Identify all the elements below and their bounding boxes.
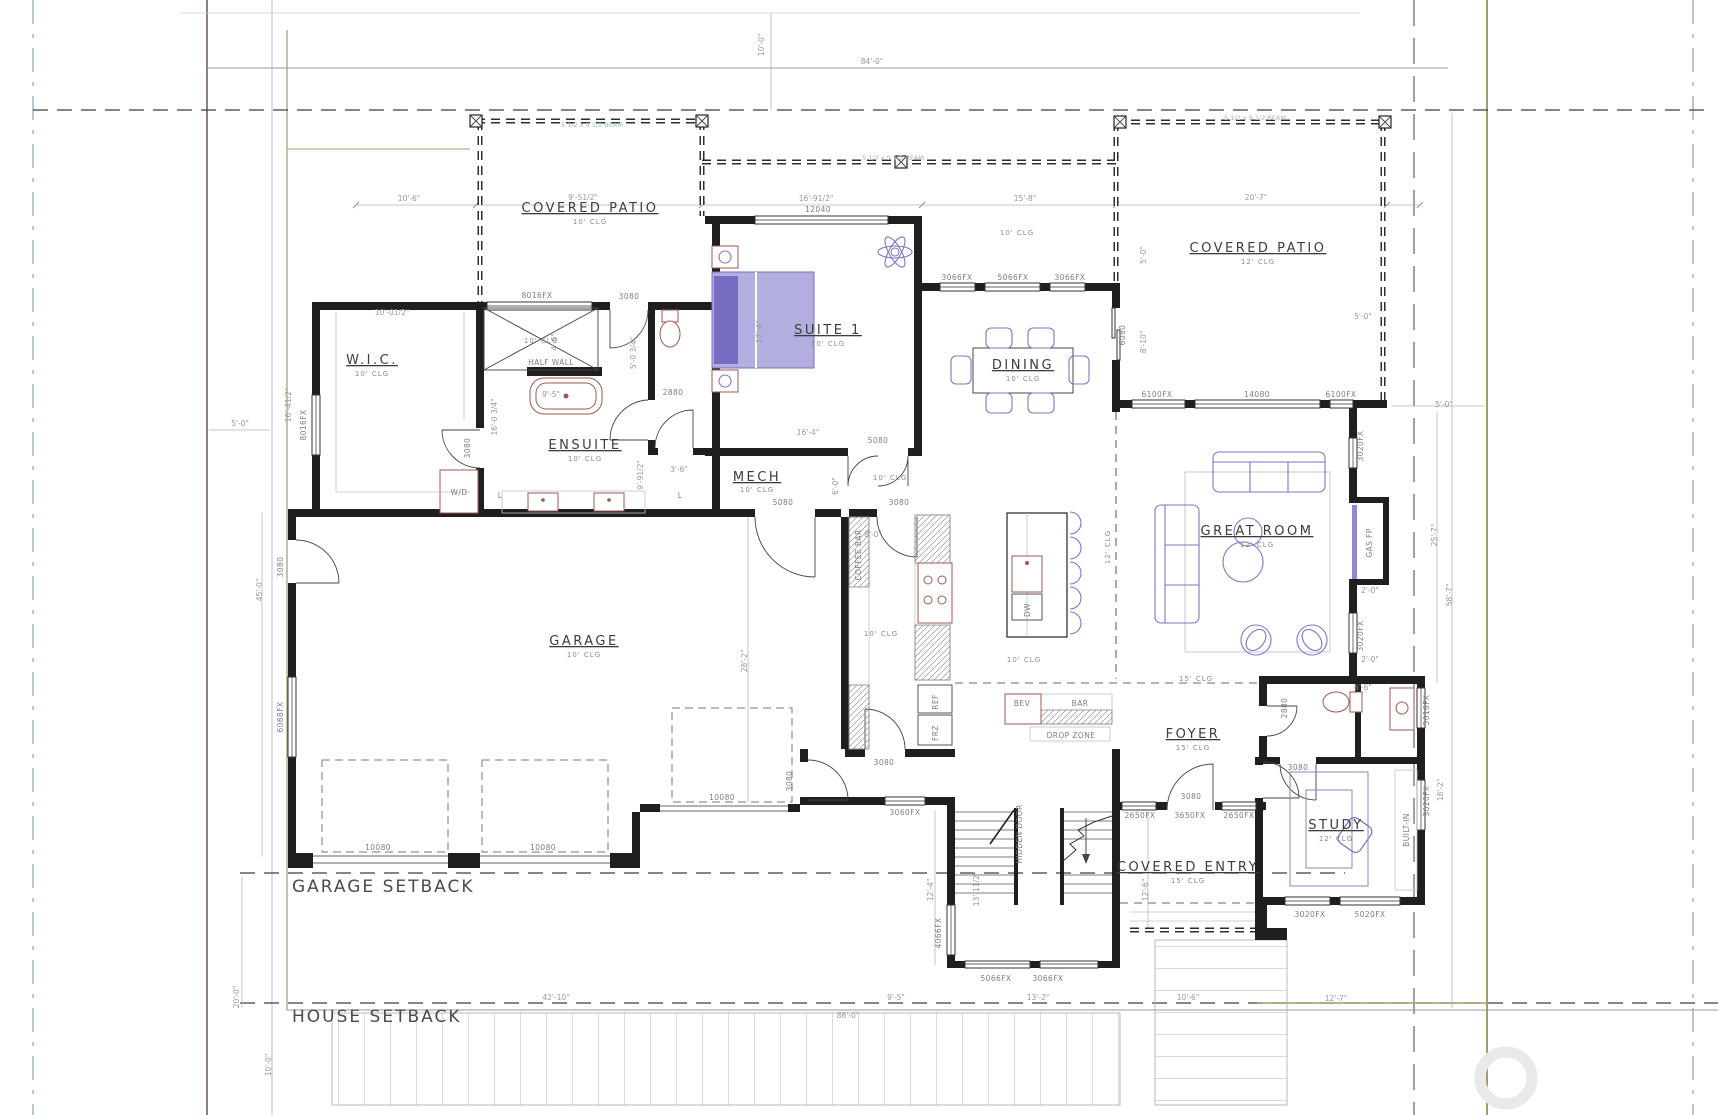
dim-label: 10'-0": [264, 1054, 273, 1077]
dim-label: 15'-8": [1014, 194, 1037, 203]
garage-door-label: 10080: [365, 843, 391, 852]
clg-label: 12' CLG: [1240, 541, 1274, 549]
hidden-door-label: HIDDEN DOOR: [1015, 804, 1024, 863]
beam-label: 5 1/2 x 9 1/2 BEAM: [1224, 114, 1286, 122]
room-label: GREAT ROOM: [1201, 524, 1314, 539]
dim-label: 12'-4": [926, 879, 935, 902]
clg-label: 10' CLG: [355, 370, 389, 378]
window-label: 3066FX: [942, 273, 973, 282]
range: [918, 563, 952, 623]
clg-label: 10' CLG: [1006, 375, 1040, 383]
clg-label: 10' CLG: [573, 218, 607, 226]
window-label: 5066FX: [981, 974, 1012, 983]
toilet: [660, 310, 680, 347]
door-label: 6080: [1118, 325, 1127, 346]
window-label: 3066FX: [1033, 974, 1064, 983]
clg-label: 15' CLG: [1171, 877, 1205, 885]
dim-label: 9'-5": [542, 390, 560, 399]
dim-label: 10'-6": [398, 194, 421, 203]
house-setback-label: HOUSE SETBACK: [292, 1007, 461, 1027]
dim-label: 6'-6": [1354, 683, 1372, 692]
dim-label: 25'-7": [1430, 524, 1439, 547]
clg-label: 10' CLG: [811, 340, 845, 348]
beam-label: 5 1/2 x 9 1/2 BEAM: [561, 121, 623, 129]
dim-label: 5'-0": [1435, 400, 1453, 409]
suite-bed: [712, 272, 814, 368]
dim-label: 8'-10": [1139, 331, 1148, 354]
dim-label: 8'-0": [864, 530, 882, 539]
dim-label: 9'-51/2": [568, 193, 598, 202]
dim-label: 20'-0": [232, 986, 241, 1009]
setback-labels: GARAGE SETBACK HOUSE SETBACK: [292, 877, 475, 1027]
door-label: 3080: [874, 758, 895, 767]
garage-door-openings: [313, 806, 788, 863]
dim-label: 5'-0": [1354, 312, 1372, 321]
room-label: GARAGE: [549, 634, 618, 649]
window-label: 3020FX: [1422, 786, 1431, 817]
garage-door-label: 10080: [530, 843, 556, 852]
window-label: 5016FX: [1422, 695, 1431, 726]
clg-note: 10' CLG: [1007, 656, 1041, 664]
clg-note: 15' CLG: [1179, 675, 1213, 683]
window-label: 12040: [805, 205, 831, 214]
clg-note: 10' CLG: [873, 474, 907, 482]
bathtub: [530, 378, 602, 414]
dim-label: 42'-10": [542, 993, 569, 1002]
built-in-label: BUILT-IN: [1402, 813, 1411, 847]
window-label: 8016FX: [299, 410, 308, 441]
dim-label: 13'-2": [1027, 993, 1050, 1002]
floor-plan-drawing: COVERED PATIO10' CLG SUITE 110' CLG DINI…: [0, 0, 1721, 1115]
door-label: 3080: [619, 292, 640, 301]
drop-zone-label: DROP ZONE: [1047, 731, 1096, 740]
room-label: DINING: [992, 358, 1054, 373]
dim-label: 58'-7": [1445, 584, 1454, 607]
garage-setback-label: GARAGE SETBACK: [292, 877, 475, 897]
wd-label: W/D: [451, 488, 468, 497]
window-label: 8016FX: [522, 291, 553, 300]
lounge-chairs: [1241, 625, 1327, 655]
room-label: SUITE 1: [794, 323, 862, 338]
clg-label: 12' CLG: [1319, 835, 1353, 843]
dim-label: 10'-6": [1177, 993, 1200, 1002]
window-label: 3020FX: [1356, 431, 1365, 462]
dim-label: 16'-0 3/4": [490, 399, 499, 436]
dim-label: 18'-2": [1436, 779, 1445, 802]
dim-label: 88'-0": [837, 1011, 860, 1020]
door-label: 2880: [663, 388, 684, 397]
doors: [296, 310, 1316, 810]
linen-label: L: [498, 491, 503, 500]
wic-shelving: [336, 312, 470, 492]
window-label: 3650FX: [1175, 811, 1206, 820]
room-label: COVERED ENTRY: [1117, 860, 1259, 875]
door-label: 3080: [463, 438, 472, 459]
window-label: 4066FX: [934, 918, 943, 949]
powder-toilet: [1323, 692, 1362, 712]
linen-label: L: [678, 491, 683, 500]
coffee-bar-label: COFFEE BAR: [854, 529, 863, 580]
dim-label: 10'-01/2": [375, 308, 410, 317]
ceiling-fan: [878, 234, 912, 269]
dim-label: 5'-0": [1139, 246, 1148, 264]
dim-label: 5'-0": [231, 419, 249, 428]
dim-label: 13'-11/2": [972, 872, 981, 907]
dim-label: 17'-4": [755, 321, 764, 344]
dw-label: DW: [1023, 603, 1032, 617]
window-label: 3020FX: [1356, 621, 1365, 652]
dim-label: 2'-0": [1361, 655, 1379, 664]
window-label: 6068FX: [276, 702, 285, 733]
clg-label: 12' CLG: [1241, 258, 1275, 266]
window-label: 2650FX: [1125, 811, 1156, 820]
window-label: 2650FX: [1224, 811, 1255, 820]
beam-label: 5 1/2 x 9 1/2 BEAM: [862, 154, 924, 162]
dim-label: 16'-41/2": [284, 388, 293, 423]
door-label: 3080: [1288, 763, 1309, 772]
dim-label: 28'-2": [740, 650, 749, 673]
dim-label: 16'-4": [797, 428, 820, 437]
room-label: ENSUITE: [548, 438, 621, 453]
room-label: STUDY: [1308, 818, 1363, 833]
clg-note: 10' CLG: [864, 630, 898, 638]
deck: [332, 912, 1287, 1105]
clg-label: 10' CLG: [740, 486, 774, 494]
clg-note: 12' CLG: [1104, 530, 1112, 564]
clg-note: 10' CLG: [1000, 229, 1034, 237]
window-label: 6100FX: [1142, 390, 1173, 399]
clg-label: 10' CLG: [567, 651, 601, 659]
dim-label: 20'-7": [1245, 193, 1268, 202]
door-label: 3080: [785, 771, 794, 792]
door-label: 3080: [276, 557, 285, 578]
door-label: 3080: [1181, 792, 1202, 801]
dim-label: 12'-6": [1141, 879, 1150, 902]
clg-note: 10' CLG: [524, 337, 558, 345]
dim-label: 16'-91/2": [799, 194, 834, 203]
dim-label: 9'-5": [887, 993, 905, 1002]
room-label: W.I.C.: [346, 353, 398, 368]
door-label: 5080: [773, 498, 794, 507]
bar-label: BAR: [1072, 699, 1089, 708]
clg-label: 10' CLG: [568, 455, 602, 463]
room-label: COVERED PATIO: [522, 201, 659, 216]
door-label: 5080: [868, 436, 889, 445]
dim-label: 12'-7": [1325, 994, 1348, 1003]
garage-car-stalls: [322, 708, 792, 852]
property-lines: [33, 0, 1718, 1115]
window-label: 3066FX: [1055, 273, 1086, 282]
dim-label: 6'-0": [831, 477, 840, 495]
half-wall-label: HALF WALL: [528, 358, 574, 367]
clg-label: 15' CLG: [1176, 744, 1210, 752]
room-label: COVERED PATIO: [1190, 241, 1327, 256]
room-label: FOYER: [1166, 727, 1221, 742]
dim-label: 5'-0 3/4": [629, 337, 638, 369]
dim-label: 84'-0": [861, 57, 884, 66]
dim-label: 10'-0": [757, 34, 766, 57]
window-label: 5066FX: [998, 273, 1029, 282]
frz-label: FRZ: [931, 725, 940, 741]
floor-plan-sheet: COVERED PATIO10' CLG SUITE 110' CLG DINI…: [0, 0, 1721, 1115]
dim-label: 3'-6": [670, 465, 688, 474]
dim-label: 45'-0": [255, 579, 264, 602]
room-label: MECH: [733, 470, 781, 485]
window-label: 14080: [1244, 390, 1270, 399]
window-label: 3060FX: [890, 808, 921, 817]
dim-label: 9'-91/2": [636, 460, 645, 490]
kitchen-island: [1007, 513, 1067, 637]
powder-sink: [1390, 688, 1414, 730]
door-label: 3080: [889, 498, 910, 507]
bev-label: BEV: [1014, 699, 1031, 708]
garage-door-label: 10080: [709, 793, 735, 802]
window-label: 3020FX: [1295, 910, 1326, 919]
bar-stools: [1070, 512, 1081, 634]
ref-label: REF: [931, 694, 940, 709]
window-label: 6100FX: [1326, 390, 1357, 399]
dim-label: 2'-0": [1361, 586, 1379, 595]
door-label: 2880: [1280, 698, 1289, 719]
gas-fp-label: GAS FP: [1365, 528, 1374, 557]
window-label: 5020FX: [1355, 910, 1386, 919]
